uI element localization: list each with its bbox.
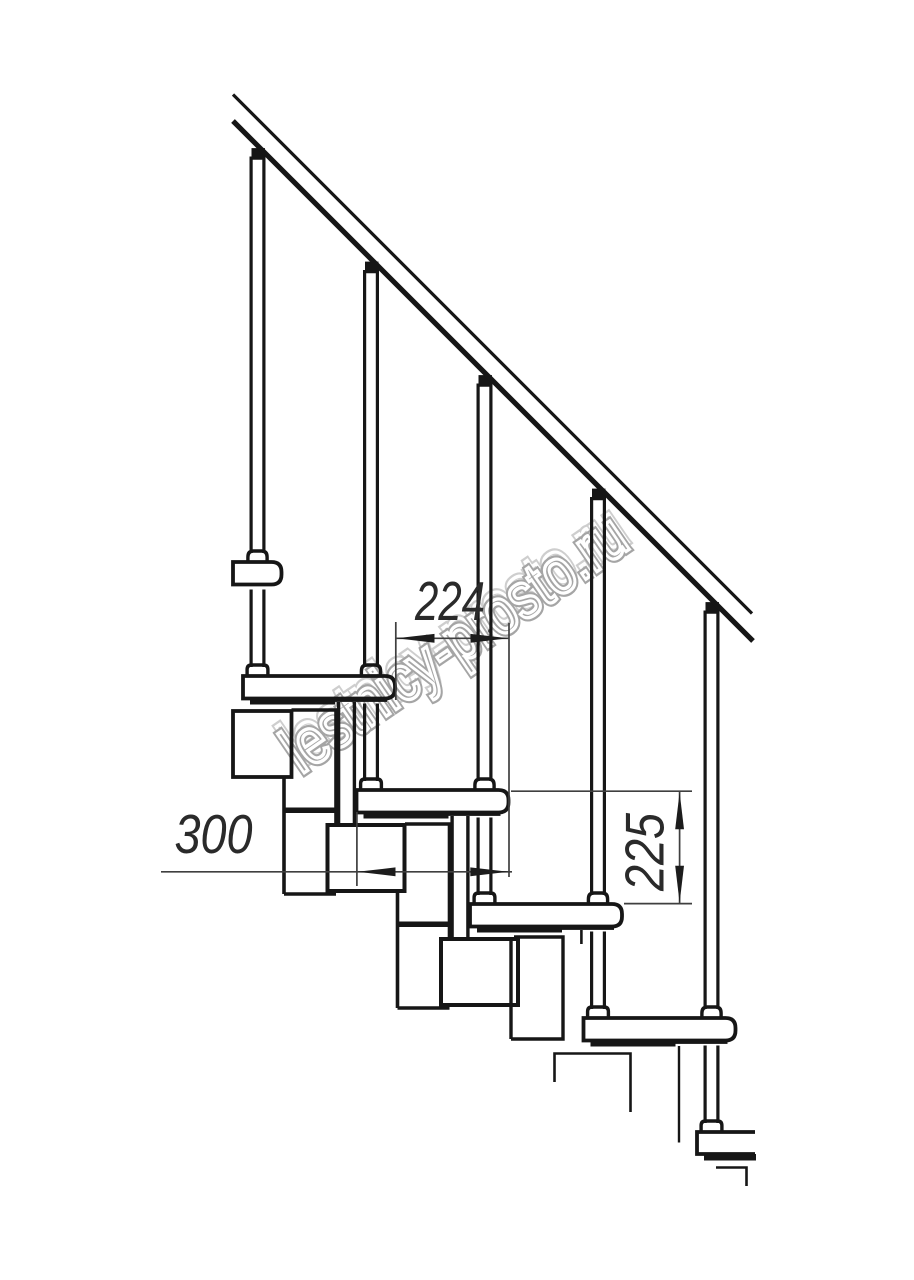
- svg-text:300: 300: [175, 803, 253, 865]
- svg-text:224: 224: [414, 570, 485, 632]
- svg-text:225: 225: [614, 813, 676, 892]
